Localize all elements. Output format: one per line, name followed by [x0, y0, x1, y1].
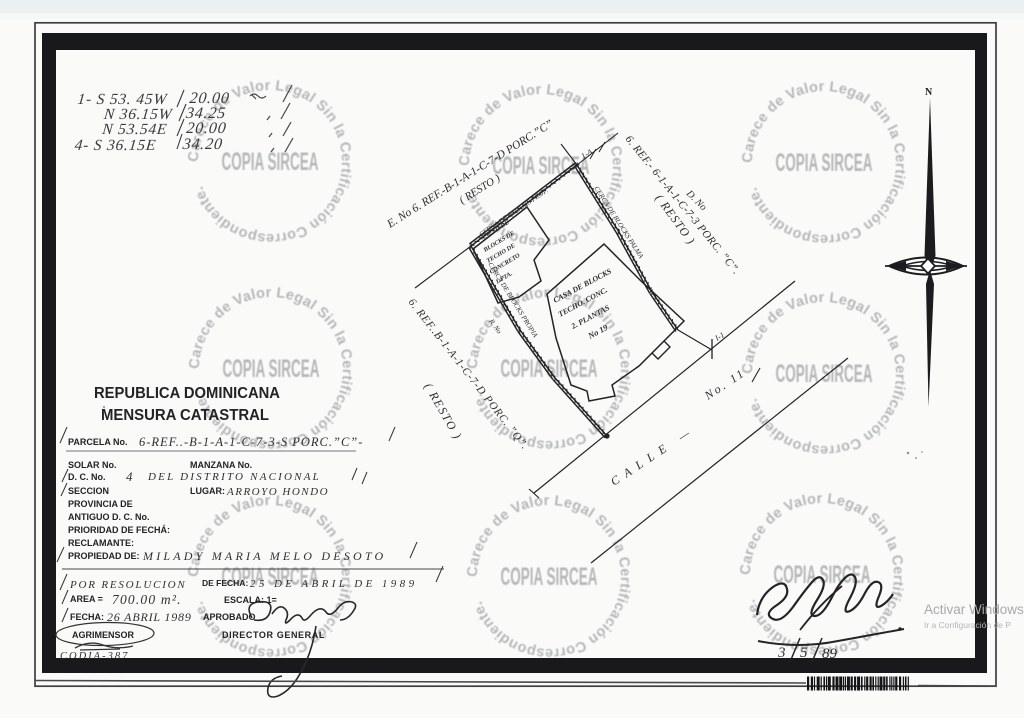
svg-text:AREA =: AREA = — [70, 594, 103, 604]
svg-text:MILADY MARIA MELO DESOTO: MILADY MARIA MELO DESOTO — [142, 549, 386, 563]
svg-text:34.20: 34.20 — [181, 136, 224, 153]
svg-text:PARCELA No.: PARCELA No. — [68, 437, 128, 447]
svg-text:N 53.54E: N 53.54E — [100, 121, 168, 138]
svg-text:3: 3 — [777, 645, 786, 661]
svg-text:89: 89 — [822, 646, 838, 662]
svg-text:AGRIMENSOR: AGRIMENSOR — [72, 630, 135, 640]
svg-text:25 DE ABRIL DE 1989: 25 DE ABRIL DE 1989 — [250, 578, 417, 590]
svg-text:POR RESOLUCION: POR RESOLUCION — [69, 579, 187, 591]
svg-text:PRIORIDAD DE FECHÁ:: PRIORIDAD DE FECHÁ: — [68, 525, 170, 535]
svg-text:6-REF..-B-1-A-1-C-7-3-S PORC.: 6-REF..-B-1-A-1-C-7-3-S PORC.”C”- — [139, 435, 363, 449]
svg-text:Ir a Configuración de P: Ir a Configuración de P — [924, 620, 1011, 630]
svg-text:RECLAMANTE:: RECLAMANTE: — [68, 538, 134, 548]
svg-text:DIRECTOR GENERAL: DIRECTOR GENERAL — [222, 630, 325, 640]
svg-text:LUGAR:: LUGAR: — [190, 486, 225, 496]
svg-text:MENSURA CATASTRAL: MENSURA CATASTRAL — [101, 407, 269, 424]
svg-text:PROVINCIA DE: PROVINCIA DE — [68, 499, 133, 509]
svg-text:REPUBLICA DOMINICANA: REPUBLICA DOMINICANA — [94, 385, 280, 402]
svg-text:ARROYO HONDO: ARROYO HONDO — [226, 486, 329, 498]
svg-text:Activar Windows: Activar Windows — [924, 602, 1024, 617]
svg-text:N: N — [925, 87, 933, 98]
svg-text:20.00: 20.00 — [186, 120, 228, 137]
svg-text:700.00 m².: 700.00 m². — [112, 592, 182, 607]
svg-text:26 ABRIL 1989: 26 ABRIL 1989 — [107, 610, 192, 624]
svg-text:FECHA:: FECHA: — [70, 612, 104, 622]
svg-text:CODIA-387: CODIA-387 — [60, 651, 129, 662]
svg-text:5: 5 — [800, 645, 808, 661]
svg-text:SECCION: SECCION — [68, 486, 109, 496]
svg-text:SOLAR No.: SOLAR No. — [68, 460, 117, 470]
svg-text:MANZANA No.: MANZANA No. — [190, 460, 252, 470]
svg-text:4- S 36.15E: 4- S 36.15E — [74, 137, 157, 154]
svg-text:DE FECHA:: DE FECHA: — [202, 578, 248, 588]
svg-text:ANTIGUO D. C. No.: ANTIGUO D. C. No. — [68, 512, 150, 522]
svg-text:PROPIEDAD DE:: PROPIEDAD DE: — [68, 551, 140, 561]
svg-text:4: 4 — [126, 469, 133, 484]
svg-text:DEL DISTRITO NACIONAL: DEL DISTRITO NACIONAL — [147, 471, 321, 483]
svg-text:APROBADO: APROBADO — [203, 612, 256, 622]
svg-text:D. C. No.: D. C. No. — [68, 472, 106, 482]
